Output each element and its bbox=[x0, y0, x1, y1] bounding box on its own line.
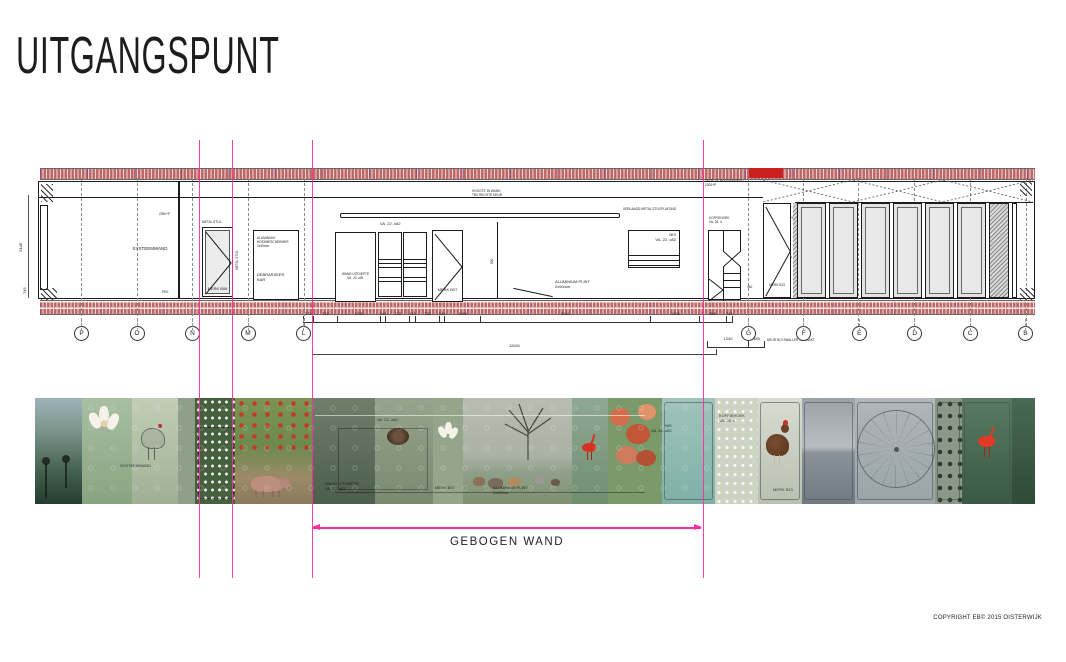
overlay-plint-line bbox=[335, 492, 645, 493]
poppy-silhouette-photo bbox=[65, 462, 67, 488]
top-brick-band bbox=[40, 168, 1035, 180]
total-dimension: 12691 bbox=[312, 349, 717, 355]
aqua-panel bbox=[662, 398, 715, 504]
dimension-value: 1080 bbox=[458, 311, 467, 316]
grid-marker: O bbox=[130, 326, 145, 341]
ibis-leg bbox=[587, 452, 588, 460]
plint-leader bbox=[513, 288, 552, 297]
wand-uitdiepte-label: WAND UITDIEPTE VA. 22. o81 bbox=[337, 273, 374, 281]
hen-comb bbox=[783, 420, 788, 425]
nis-box: NIS VA. 22. o82 bbox=[628, 230, 680, 268]
dimension-segment: 1080 bbox=[444, 316, 479, 322]
ferris-wheel bbox=[855, 398, 935, 504]
grid-markers-right: G F E D C B bbox=[741, 326, 1033, 341]
magenta-guide-4 bbox=[703, 140, 705, 578]
dimension-value: 142 bbox=[726, 311, 733, 316]
glass-panel bbox=[957, 203, 986, 298]
pig-leg bbox=[262, 491, 264, 497]
v-brace bbox=[709, 279, 723, 301]
dimension-segment: 1295 bbox=[337, 316, 379, 322]
chicken-leg bbox=[148, 447, 149, 460]
hen-leg bbox=[779, 455, 780, 465]
floor-line bbox=[38, 298, 1035, 299]
panel-transition bbox=[178, 398, 195, 504]
elevation-drawing: 2448 745 SYSTEEMWAND 2350+P PEIL METAL S… bbox=[35, 160, 1035, 360]
ibis-body bbox=[978, 436, 995, 447]
wand-uitdiepte-box: WAND UITDIEPTE VA. 22. o81 bbox=[335, 232, 376, 302]
glass-panel bbox=[925, 203, 954, 298]
overlay-aluminium-plint: ALUMINIUM PLINT 2x50mm bbox=[493, 486, 528, 496]
dimension-segment: 485 bbox=[748, 341, 764, 347]
poppy-garden-with-pig bbox=[235, 398, 312, 504]
metal-stijl-label-top: METAL STIJL bbox=[202, 221, 221, 225]
coral-bloom bbox=[616, 446, 638, 464]
red-marker-block bbox=[749, 168, 783, 178]
shelf-line bbox=[723, 280, 740, 281]
grid-marker: D bbox=[907, 326, 922, 341]
door-b13: MERK B13 bbox=[763, 203, 791, 298]
koffiehoek-label: KOFFIEHOEK VA. 26. o bbox=[709, 217, 730, 225]
left-end-panel bbox=[40, 205, 48, 290]
ibis-leg bbox=[984, 447, 985, 457]
chicken-sketch bbox=[132, 398, 178, 504]
systeemwand-label: SYSTEEMWAND bbox=[120, 246, 180, 251]
beach-horizon bbox=[802, 398, 855, 504]
overlay-va22: VA. 22. o82 bbox=[377, 418, 398, 423]
dot-panel bbox=[935, 398, 962, 504]
ibis-leg bbox=[989, 447, 990, 457]
overlay-koffiehoek: KOFFIEHOEK VA. 26. o bbox=[719, 414, 745, 424]
dark-green-end bbox=[1012, 398, 1035, 504]
shelf-line bbox=[723, 287, 740, 288]
grid-marker-letter: E bbox=[857, 330, 861, 337]
x-brace bbox=[723, 251, 741, 267]
horse-photo bbox=[535, 476, 545, 484]
left-hatch-top bbox=[41, 184, 53, 202]
misty-poppy-silhouettes bbox=[35, 398, 82, 504]
cabinet-2 bbox=[403, 232, 427, 297]
grid-marker-letter: L bbox=[302, 330, 306, 337]
dimension-segment: 725 bbox=[385, 316, 409, 322]
grid-marker-letter: D bbox=[912, 330, 917, 337]
overlay-nis: NIS VA. 22. o82 bbox=[651, 424, 672, 434]
scarlet-ibis-photo bbox=[580, 440, 600, 470]
magenta-guide-1 bbox=[199, 140, 201, 578]
shelf-line bbox=[404, 259, 426, 260]
hen-head bbox=[781, 424, 789, 433]
magnolia-photo bbox=[90, 404, 120, 440]
grid-markers-left: P O N M L bbox=[74, 326, 311, 341]
left-dimension-line bbox=[28, 195, 29, 298]
grid-line-N bbox=[192, 178, 193, 326]
white-magnolia bbox=[82, 398, 132, 504]
shelf-line bbox=[404, 281, 426, 282]
roof-bracing bbox=[853, 180, 943, 202]
total-dimension-value: 12691 bbox=[313, 343, 716, 348]
glass-panel bbox=[893, 203, 922, 298]
scarlet-ibis-on-green bbox=[962, 398, 1012, 504]
scarlet-ibis-photo bbox=[976, 432, 1000, 466]
vertical-dimension bbox=[497, 222, 498, 298]
bk-koz-label: 2350+P bbox=[159, 213, 170, 217]
dimension-value: 1295 bbox=[355, 311, 364, 316]
overlay-systeemwand: SYSTEEMWAND bbox=[120, 464, 151, 469]
dimension-value: 1506 bbox=[671, 311, 680, 316]
ferris-wheel-photo bbox=[857, 410, 935, 488]
grid-marker: G bbox=[741, 326, 756, 341]
glass-panel bbox=[797, 203, 826, 298]
merk-b06-label: MERK B06 bbox=[203, 287, 232, 292]
debrasseer-kar-label: DEBRASSEER KAR bbox=[257, 273, 284, 283]
gebogen-wand-label: GEBOGEN WAND bbox=[312, 536, 702, 548]
wall-divider bbox=[178, 181, 180, 298]
shelf-line bbox=[404, 277, 426, 278]
right-hatch-top bbox=[1020, 182, 1032, 196]
shelf-line bbox=[723, 273, 740, 274]
grid-marker-letter: O bbox=[134, 330, 139, 337]
grid-marker-letter: N bbox=[190, 330, 195, 337]
coral-flowers bbox=[608, 398, 662, 504]
pig-leg bbox=[255, 491, 257, 497]
grid-marker: P bbox=[74, 326, 89, 341]
horse-photo bbox=[551, 479, 560, 486]
stucplafond-label: VERLAAGD METAL STUCPLAFOND bbox=[623, 208, 676, 212]
grid-marker-letter: B bbox=[1023, 330, 1027, 337]
grid-marker: M bbox=[241, 326, 256, 341]
dimension-segment: 725 bbox=[415, 316, 439, 322]
right-wall-edge bbox=[1034, 181, 1035, 298]
overlay-wand-uitdiepte: WAND UITDIEPTE VA. 22. o81 bbox=[325, 482, 359, 492]
shelf-line bbox=[404, 263, 426, 264]
grid-line-L bbox=[304, 178, 305, 326]
door-b06: MERK B06 bbox=[202, 227, 233, 297]
grid-marker-letter: C bbox=[968, 330, 973, 337]
bare-tree-photo bbox=[499, 400, 557, 460]
koffiehoek-unit bbox=[708, 230, 741, 300]
dimension-value: 752 bbox=[322, 311, 329, 316]
door-b07: MERK B07 bbox=[432, 230, 463, 302]
shelf-line bbox=[379, 263, 401, 264]
white-flower-photo bbox=[439, 422, 457, 442]
chicken-leg bbox=[154, 447, 155, 460]
bottom-brick-band bbox=[40, 300, 1035, 315]
horse-photo bbox=[473, 477, 485, 486]
grid-marker: B bbox=[1018, 326, 1033, 341]
dim-745: 745 bbox=[23, 287, 28, 294]
grid-line-O bbox=[137, 178, 138, 326]
left-wall-edge bbox=[38, 181, 39, 298]
shelf-line bbox=[629, 255, 679, 256]
grid-marker: C bbox=[963, 326, 978, 341]
glass-panel bbox=[829, 203, 858, 298]
coral-bloom bbox=[638, 404, 656, 420]
shelf-line bbox=[379, 267, 401, 268]
dimension-value: 5341 bbox=[561, 311, 570, 316]
ibis-leg bbox=[591, 452, 592, 460]
debrasseer-kar-box: ALUMINIUM HOEKBESCHERMER 2x40mm DEBRASSE… bbox=[253, 230, 299, 300]
shelf-line bbox=[379, 259, 401, 260]
dim-890: 890 bbox=[491, 259, 495, 264]
stucplafond-bar bbox=[340, 213, 620, 218]
coral-bloom bbox=[636, 450, 656, 466]
aluminium-plint-label: ALUMINIUM PLINT 2x50mm bbox=[555, 280, 590, 290]
hen-photo bbox=[766, 434, 789, 456]
secondary-ceiling-line bbox=[38, 197, 763, 198]
overlay-ceiling-line bbox=[315, 415, 645, 416]
shelf-line bbox=[629, 260, 679, 261]
grid-line-M bbox=[248, 178, 249, 326]
grid-marker: L bbox=[296, 326, 311, 341]
overlay-merk-b13: MERK B13 bbox=[773, 488, 793, 493]
glass-panel bbox=[861, 203, 890, 298]
dimension-segment: 752 bbox=[313, 316, 338, 322]
merk-b13-label: MERK B13 bbox=[764, 284, 790, 288]
dimension-segment: 1506 bbox=[650, 316, 699, 322]
peil-label: PEIL bbox=[162, 291, 169, 295]
grid-marker-letter: F bbox=[802, 330, 806, 337]
nis-label: NIS VA. 22. o82 bbox=[655, 233, 676, 243]
roof-bracing bbox=[763, 180, 853, 202]
hatched-end-panel bbox=[989, 203, 1009, 298]
copyright-text: COPYRIGHT EB© 2015 OISTERWIJK bbox=[933, 615, 1042, 621]
magenta-guide-2 bbox=[232, 140, 234, 578]
grid-line-G bbox=[748, 178, 749, 326]
end-post bbox=[1012, 203, 1017, 298]
ibis-body bbox=[582, 443, 596, 452]
pig-leg bbox=[278, 491, 280, 497]
dimension-segment: 1240 bbox=[707, 341, 748, 347]
magenta-guide-3 bbox=[312, 140, 314, 578]
page-title: UITGANGSPUNT bbox=[16, 26, 280, 86]
dimension-value: 725 bbox=[424, 311, 431, 316]
ibis-neck bbox=[989, 427, 994, 437]
coral-bloom bbox=[626, 424, 650, 444]
grid-line-P bbox=[81, 178, 82, 326]
dim-440: 440 bbox=[747, 286, 752, 290]
overlay-door-b06 bbox=[198, 427, 234, 499]
pig-head bbox=[280, 478, 290, 488]
overlay-merk-b07: MERK B07 bbox=[435, 486, 455, 491]
dimension-value: 725 bbox=[394, 311, 401, 316]
va22-o82-label: VA. 22. o82 bbox=[380, 222, 401, 227]
poppy-silhouette-photo bbox=[45, 464, 47, 498]
hen-leg bbox=[774, 455, 775, 465]
right-dimension-row: 1240 485 bbox=[707, 341, 765, 348]
grid-marker-letter: G bbox=[746, 330, 751, 337]
dim-2448: 2448 bbox=[19, 243, 24, 252]
dimension-segment: 142 bbox=[726, 316, 732, 322]
grid-marker: F bbox=[796, 326, 811, 341]
dimension-row: 271 752 1295 143 725 143 bbox=[303, 316, 733, 323]
shelf-line bbox=[379, 277, 401, 278]
scarlet-ibis bbox=[572, 398, 608, 504]
presentation-slide: UITGANGSPUNT 2448 745 SYSTEEMWAND bbox=[0, 0, 1066, 662]
left-hatch-bottom bbox=[41, 288, 57, 300]
dimension-segment: 5341 bbox=[480, 316, 651, 322]
flower-center bbox=[101, 420, 108, 427]
photo-collage-strip: SYSTEEMWAND VA. 22. o82 WAND UITDIEPTE V… bbox=[35, 398, 1035, 504]
pig-leg bbox=[272, 491, 274, 497]
cabinet-1 bbox=[378, 232, 402, 297]
dimension-value: 809 bbox=[710, 311, 717, 316]
hoekbeschermer-label: ALUMINIUM HOEKBESCHERMER 2x40mm bbox=[257, 237, 289, 249]
merk-b07-label: MERK B07 bbox=[433, 288, 462, 293]
coral-bloom bbox=[610, 408, 630, 426]
grid-marker: E bbox=[852, 326, 867, 341]
chicken-sketch-photo bbox=[141, 428, 165, 449]
grid-marker-letter: M bbox=[245, 330, 250, 337]
dim-1240: 1240 bbox=[724, 336, 733, 341]
hoogte-in-wand-note: HOOGTE IN WAND TBV RECHTE DEUR bbox=[472, 190, 502, 198]
chicken-wattle bbox=[158, 424, 162, 428]
grid-marker-letter: P bbox=[79, 330, 83, 337]
shelf-line bbox=[404, 267, 426, 268]
shelf-line bbox=[629, 265, 679, 266]
right-hatch-bottom bbox=[1020, 288, 1034, 300]
gebogen-wand-arrow bbox=[313, 527, 701, 529]
pig-photo bbox=[251, 476, 283, 492]
plaf-niveau-note: UM PLAF HOOGENIVEAU 2300+P bbox=[705, 180, 743, 188]
shelf-line bbox=[379, 281, 401, 282]
metal-stijl-label-side: METAL STIJL bbox=[236, 251, 240, 270]
koffiehoek-x-box bbox=[723, 251, 741, 267]
